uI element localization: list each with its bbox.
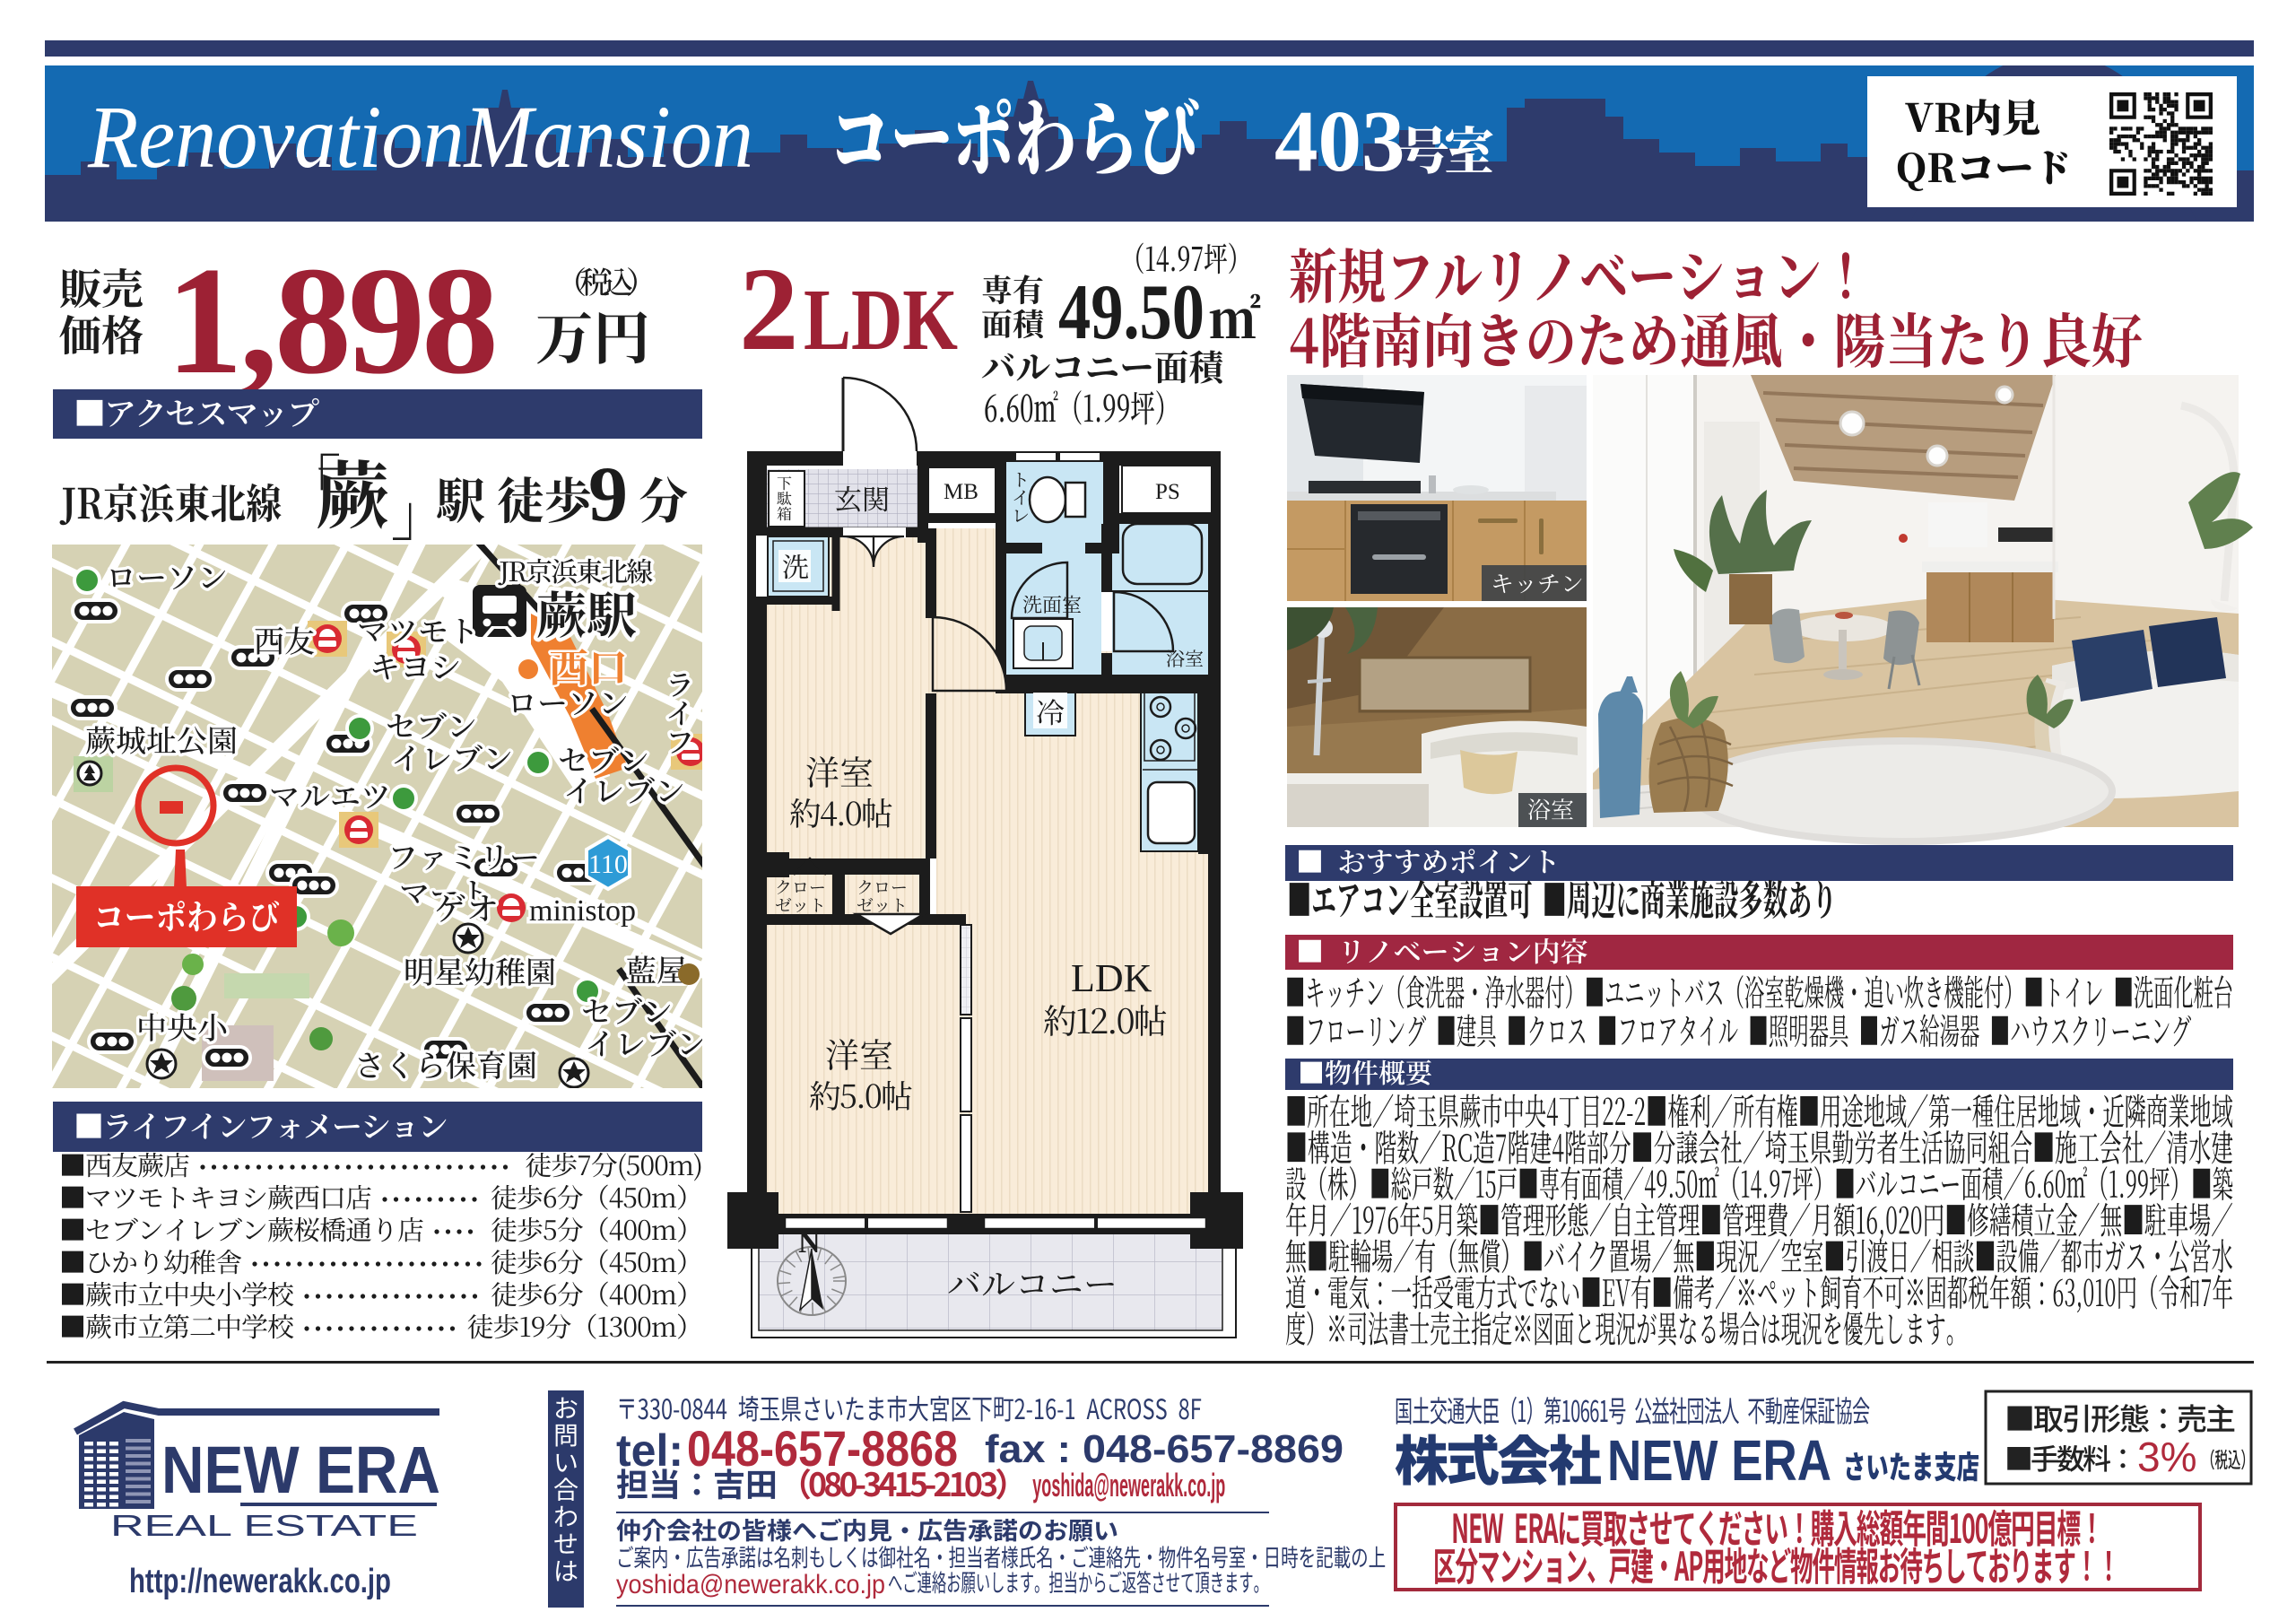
svg-text:LDK: LDK xyxy=(804,272,958,368)
svg-text:yoshida@newerakk.co.jp: yoshida@newerakk.co.jp xyxy=(1032,1467,1225,1503)
svg-text:110: 110 xyxy=(588,850,628,879)
svg-text:49.50: 49.50 xyxy=(1058,269,1205,356)
svg-text:9: 9 xyxy=(588,451,628,538)
svg-text:NEW ERA: NEW ERA xyxy=(161,1433,440,1507)
svg-text:3%: 3% xyxy=(2137,1434,2196,1480)
svg-text:LDK: LDK xyxy=(1071,956,1152,1000)
svg-text:PS: PS xyxy=(1155,480,1180,504)
svg-text:ministop: ministop xyxy=(529,894,636,928)
svg-text:fax : 048-657-8869: fax : 048-657-8869 xyxy=(985,1427,1344,1471)
svg-text:tel:: tel: xyxy=(616,1425,683,1476)
svg-text:2: 2 xyxy=(739,242,799,375)
svg-text:MB: MB xyxy=(944,480,978,504)
svg-text:N: N xyxy=(798,1226,821,1259)
svg-text:1,898: 1,898 xyxy=(166,236,495,406)
svg-text:403: 403 xyxy=(1274,93,1405,189)
svg-text:NEW ERA: NEW ERA xyxy=(1607,1428,1831,1493)
svg-text:REAL ESTATE: REAL ESTATE xyxy=(110,1509,418,1542)
svg-text:yoshida@newerakk.co.jp: yoshida@newerakk.co.jp xyxy=(616,1570,885,1599)
svg-text:http://newerakk.co.jp: http://newerakk.co.jp xyxy=(129,1563,391,1600)
svg-text:048-657-8868: 048-657-8868 xyxy=(687,1420,958,1477)
svg-text:RenovationMansion: RenovationMansion xyxy=(87,87,753,187)
